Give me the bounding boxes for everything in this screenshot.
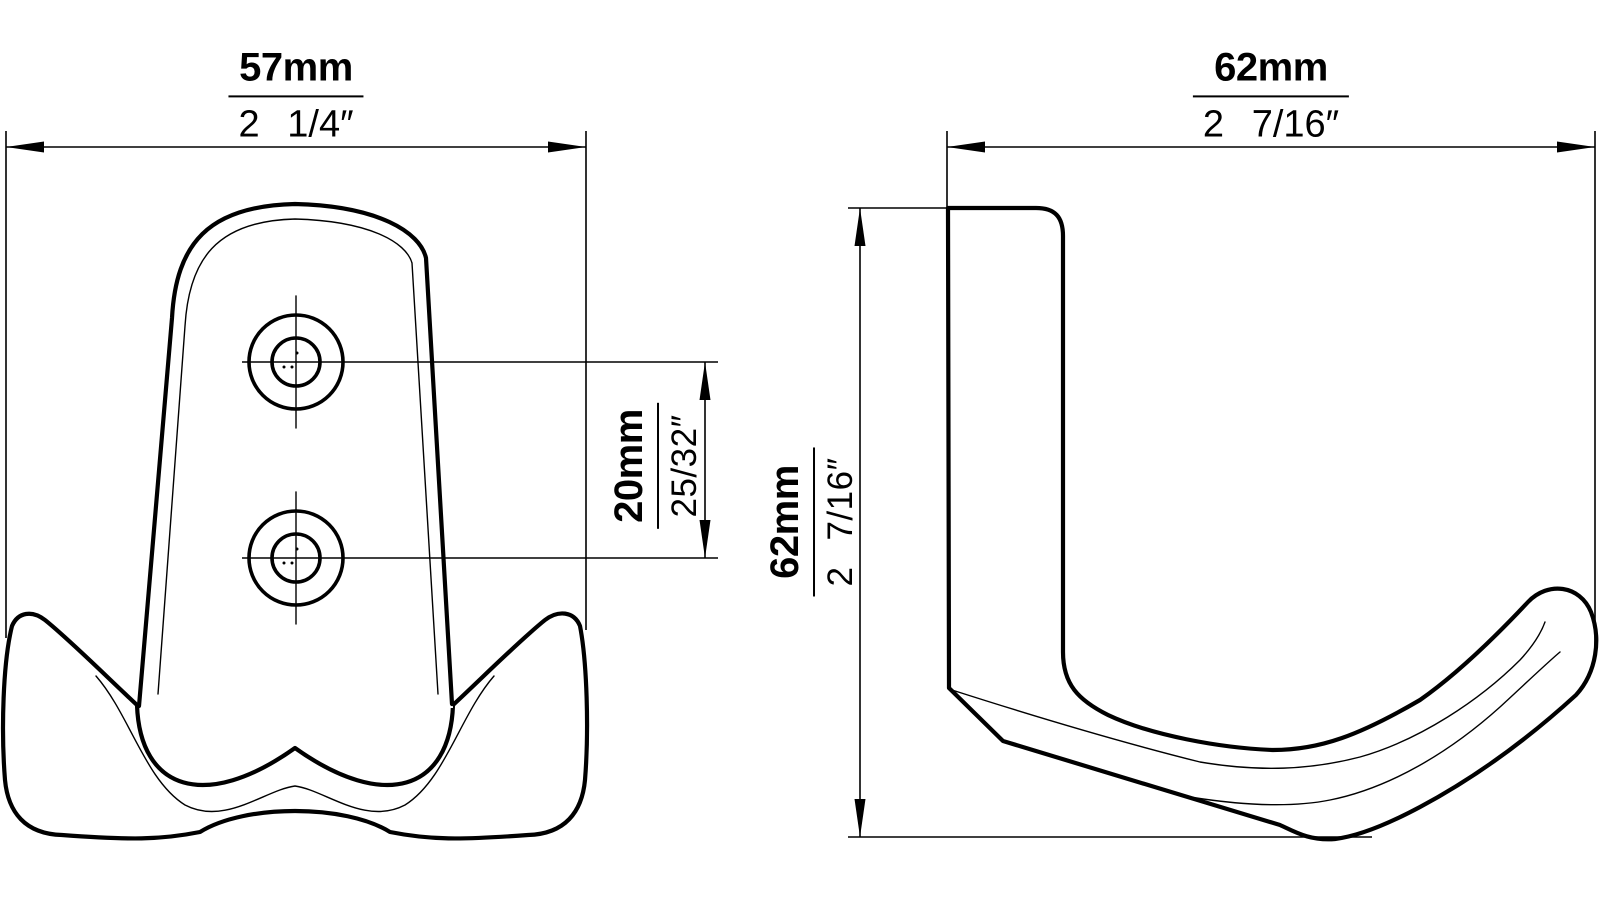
side-width-dimension-label: 62mm 2 7/16″ bbox=[1193, 46, 1349, 145]
side-width-mm-value: 62mm bbox=[1193, 46, 1349, 97]
technical-drawing: 57mm 2 1/4″ 62mm 2 7/16″ 20mm 25/32″ 62m… bbox=[0, 0, 1600, 900]
front-width-dimension-label: 57mm 2 1/4″ bbox=[228, 46, 363, 145]
hole-spacing-mm-value: 20mm bbox=[608, 403, 659, 529]
front-width-mm-value: 57mm bbox=[228, 46, 363, 97]
side-height-mm-value: 62mm bbox=[764, 448, 815, 597]
side-height-inch-value: 2 7/16″ bbox=[815, 448, 860, 597]
side-width-inch-value: 2 7/16″ bbox=[1193, 98, 1349, 146]
front-width-inch-value: 2 1/4″ bbox=[228, 98, 363, 146]
hole-spacing-inch-value: 25/32″ bbox=[659, 405, 704, 528]
side-height-dimension-label: 62mm 2 7/16″ bbox=[764, 448, 860, 597]
front-plate-fill bbox=[139, 204, 453, 708]
hole-spacing-dimension-label: 20mm 25/32″ bbox=[608, 403, 704, 529]
